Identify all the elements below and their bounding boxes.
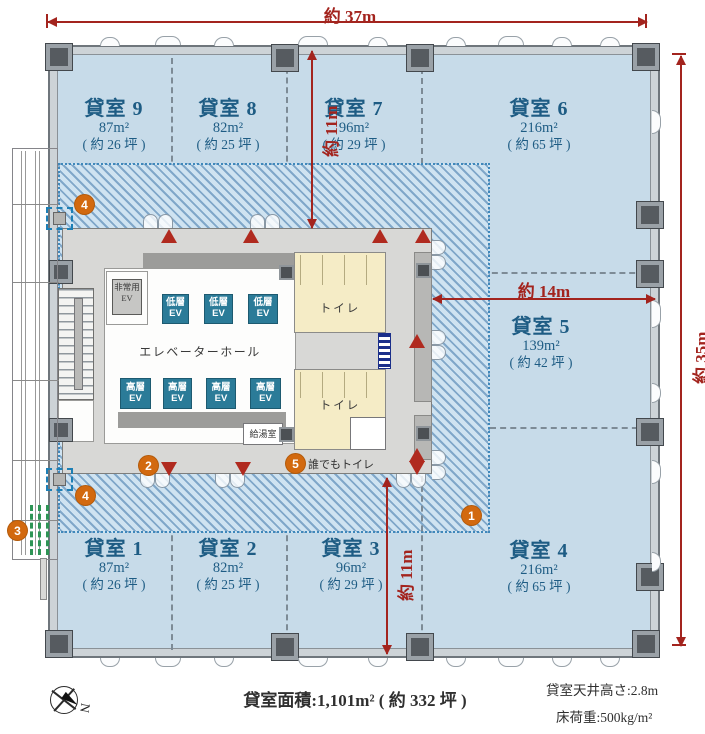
column <box>272 45 298 71</box>
dimension-arrow-11m-upper <box>311 51 313 228</box>
marker-3: 3 <box>8 521 27 540</box>
annotation-line-green <box>30 505 33 555</box>
emergency-elevator-label: 非常用 EV <box>104 282 150 303</box>
window-bump <box>155 658 181 667</box>
dimension-arrow-11m-lower <box>386 478 388 654</box>
accessible-toilet-room <box>350 417 386 450</box>
room-label-4: 貸室 4 216m² ( 約 65 坪 ) <box>428 540 650 596</box>
room-label-7: 貸室 7 96m² ( 約 29 坪 ) <box>290 98 418 154</box>
high-rise-elevator: 高層EV <box>120 378 151 409</box>
toilet-lower-label: トイレ <box>294 397 386 413</box>
dimension-label-14m: 約 14m <box>474 277 614 302</box>
scaffold-line <box>13 204 59 205</box>
annotation-block <box>53 473 66 486</box>
window-bump <box>298 36 328 45</box>
room-separator <box>421 476 423 650</box>
room-separator <box>490 427 648 429</box>
window-bump <box>498 658 524 667</box>
door-arc-icon <box>265 214 280 228</box>
window-bump <box>552 658 572 667</box>
scaffold-post <box>40 558 47 600</box>
column <box>637 419 663 445</box>
room-label-5: 貸室 5 139m² ( 約 42 坪 ) <box>432 316 650 372</box>
scaffold-line <box>13 380 59 381</box>
window-bump <box>498 36 524 45</box>
room-label-8: 貸室 8 82m² ( 約 25 坪 ) <box>172 98 284 154</box>
column <box>633 44 659 70</box>
marker-2: 2 <box>139 456 158 475</box>
low-rise-elevator: 低層EV <box>248 294 278 324</box>
core-column <box>416 263 431 278</box>
high-rise-elevator: 高層EV <box>250 378 281 409</box>
window-bump <box>100 658 120 667</box>
door-arc-icon <box>143 214 158 228</box>
total-area-text: 貸室面積:1,101m² ( 約 332 坪 ) <box>205 686 505 711</box>
window-bump <box>214 658 234 667</box>
entrance-diamond-icon <box>409 448 425 462</box>
window-bump <box>552 37 572 46</box>
elevator-machine-band <box>143 253 295 268</box>
accessible-toilet-label: 誰でもトイレ <box>308 456 374 472</box>
core-column <box>279 265 294 280</box>
entrance-triangle-icon <box>161 462 177 476</box>
floor-plan: 非常用 EV 低層EV 低層EV 低層EV エレベーターホール 高層EV 高層E… <box>0 0 705 734</box>
entrance-triangle-icon <box>235 462 251 476</box>
entrance-triangle-icon <box>415 229 431 243</box>
marker-1: 1 <box>462 506 481 525</box>
toilet-upper-label: トイレ <box>294 300 386 316</box>
window-bump <box>368 658 388 667</box>
column <box>637 202 663 228</box>
low-rise-elevator: 低層EV <box>162 294 189 324</box>
window-bump <box>446 658 466 667</box>
column <box>272 634 298 660</box>
kitchenette: 給湯室 <box>243 423 283 445</box>
dimension-label-37m: 約 37m <box>280 2 420 27</box>
room-label-6: 貸室 6 216m² ( 約 65 坪 ) <box>428 98 650 154</box>
toilet-stalls <box>300 372 370 398</box>
door-arc-icon <box>158 214 173 228</box>
column <box>637 261 663 287</box>
column <box>46 44 72 70</box>
entrance-triangle-icon <box>372 229 388 243</box>
room-label-2: 貸室 2 82m² ( 約 25 坪 ) <box>172 538 284 594</box>
floor-load-text: 床荷重:500kg/m² <box>556 706 652 726</box>
door-arc-icon <box>250 214 265 228</box>
annotation-block <box>53 212 66 225</box>
ceiling-height-text: 貸室天井高さ:2.8m <box>546 679 658 699</box>
window-bump <box>100 37 120 46</box>
window-bump <box>600 658 620 667</box>
scaffold-line <box>13 282 59 283</box>
entrance-triangle-icon <box>409 334 425 348</box>
scaffold-rail <box>35 151 40 555</box>
window-bump <box>214 37 234 46</box>
dimension-arrow-35m <box>680 56 682 646</box>
dimension-label-11m-upper: 約 11m <box>317 106 342 157</box>
core-column <box>416 426 431 441</box>
room-label-1: 貸室 1 87m² ( 約 26 坪 ) <box>60 538 168 594</box>
column <box>407 45 433 71</box>
column <box>633 631 659 657</box>
annotation-line-green <box>38 505 41 555</box>
entrance-triangle-icon <box>243 229 259 243</box>
marker-5: 5 <box>286 454 305 473</box>
column <box>46 631 72 657</box>
dimension-label-11m-lower: 約 11m <box>392 550 417 601</box>
annotation-line-green <box>46 505 49 555</box>
scaffold-line <box>13 460 59 461</box>
stair-rail <box>74 298 83 390</box>
toilet-stalls <box>300 255 370 285</box>
window-bump <box>155 36 181 45</box>
window-bump <box>600 37 620 46</box>
shaft-stripes <box>378 333 391 369</box>
elevator-hall-label: エレベーターホール <box>104 343 296 360</box>
low-rise-elevator: 低層EV <box>204 294 233 324</box>
marker-4-upper: 4 <box>75 195 94 214</box>
window-bump <box>446 37 466 46</box>
room-label-9: 貸室 9 87m² ( 約 26 坪 ) <box>60 98 168 154</box>
window-bump <box>368 37 388 46</box>
high-rise-elevator: 高層EV <box>163 378 192 409</box>
high-rise-elevator: 高層EV <box>206 378 236 409</box>
marker-4-lower: 4 <box>76 486 95 505</box>
window-bump <box>298 658 328 667</box>
compass-north-label: N <box>76 702 93 714</box>
column <box>407 634 433 660</box>
entrance-diamond-icon <box>409 461 425 475</box>
entrance-triangle-icon <box>161 229 177 243</box>
core-column <box>279 427 294 442</box>
scaffold-rail <box>21 151 26 555</box>
dimension-label-35m: 約 35m <box>687 332 705 384</box>
